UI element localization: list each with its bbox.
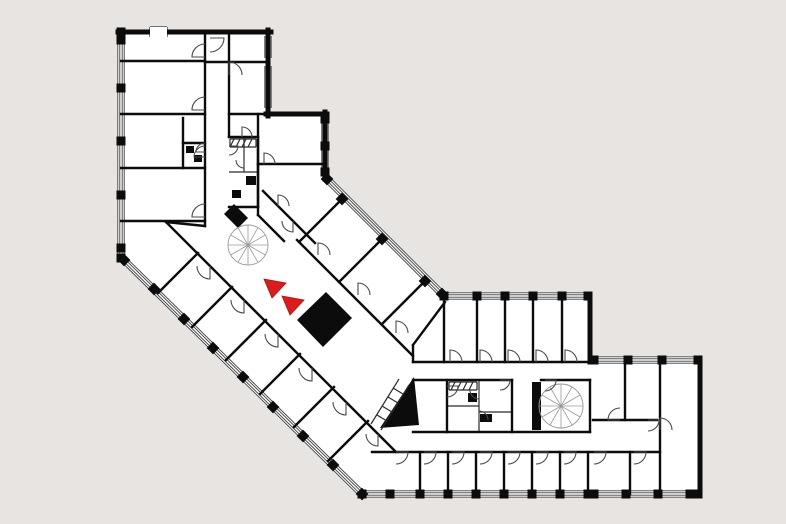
floor-plan-svg [0,0,786,524]
facade-farright-north [590,357,703,363]
shaft-block [468,393,477,402]
facade-farright-south [590,491,703,497]
top-wall-notch [150,27,167,37]
spiral-stair-main [228,225,268,265]
shaft-block [186,146,194,153]
shaft-block [232,190,241,198]
floor-plan-page [0,0,786,524]
shaft-block [246,176,256,185]
facade-rightwing-north [440,293,593,299]
shaft-block [194,155,202,162]
facade-west [118,28,124,263]
